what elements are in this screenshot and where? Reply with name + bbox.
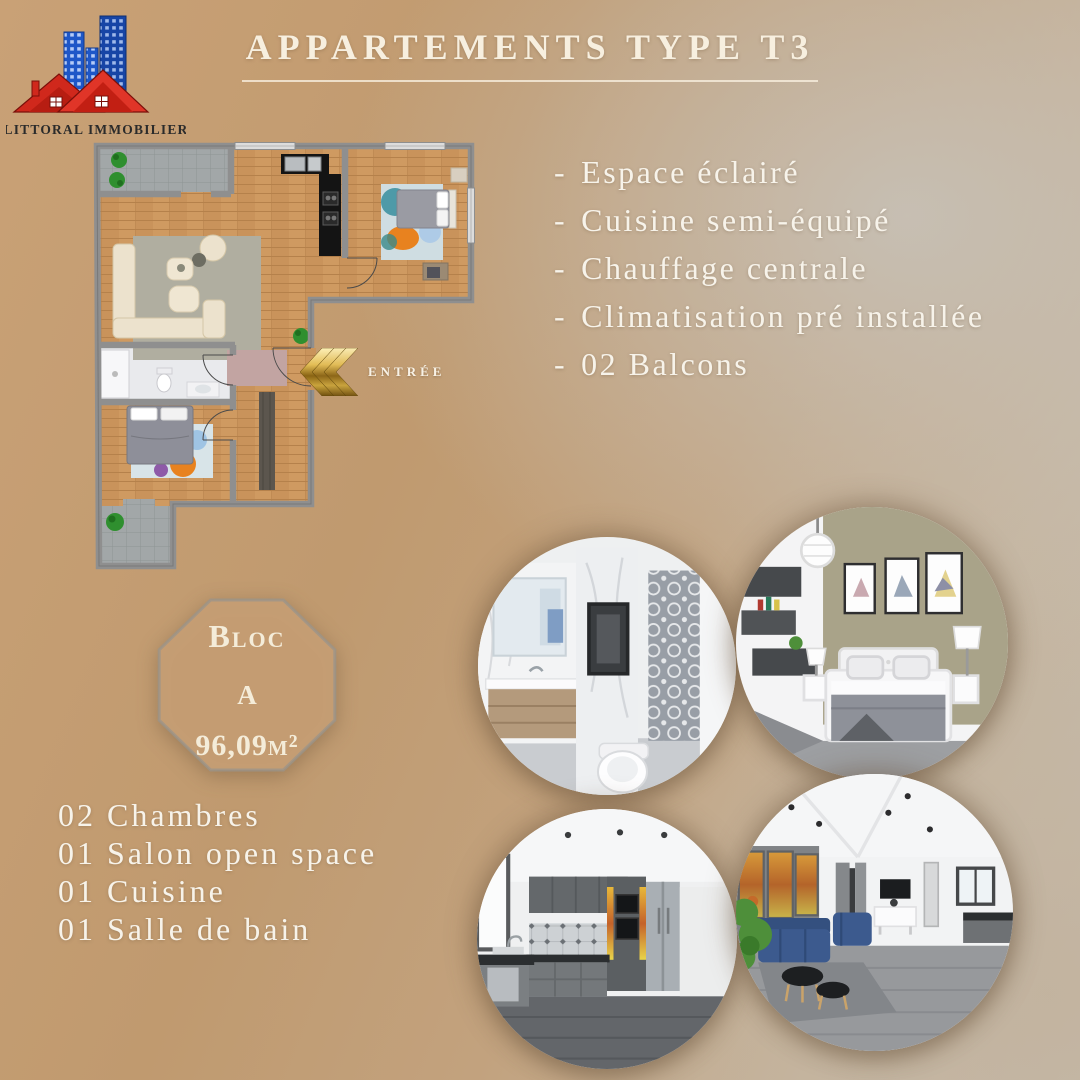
- photo-living-room: [736, 774, 1013, 1051]
- feature-item: -Climatisation pré installée: [554, 292, 985, 340]
- feature-item: -02 Balcons: [554, 340, 985, 388]
- composition-item: 01 Salle de bain: [58, 910, 377, 948]
- composition-item: 02 Chambres: [58, 796, 377, 834]
- photo-bedroom: [736, 507, 1008, 779]
- page-title: Appartements type T3: [240, 26, 820, 82]
- page-title-text: Appartements type T3: [242, 26, 819, 82]
- block-letter: A: [237, 680, 257, 710]
- block-badge: Bloc A 96,09m²: [147, 592, 347, 782]
- feature-item: -Espace éclairé: [554, 148, 985, 196]
- brand-logo: LITTORAL IMMOBILIER: [6, 4, 186, 144]
- entrance-marker: ENTRÉE: [300, 348, 445, 396]
- brand-name: LITTORAL IMMOBILIER: [6, 122, 186, 137]
- composition-item: 01 Cuisine: [58, 872, 377, 910]
- composition-list: 02 Chambres 01 Salon open space 01 Cuisi…: [58, 796, 377, 948]
- entrance-label: ENTRÉE: [368, 364, 445, 380]
- gold-chevrons-icon: [300, 348, 358, 396]
- block-area: 96,09m²: [195, 729, 298, 762]
- poster: LITTORAL IMMOBILIER Appartements type T3: [0, 0, 1080, 1080]
- features-list: -Espace éclairé -Cuisine semi-équipé -Ch…: [554, 148, 985, 388]
- photo-kitchen: [477, 809, 737, 1069]
- feature-item: -Chauffage centrale: [554, 244, 985, 292]
- photo-bathroom: [478, 537, 736, 795]
- buildings-roofs-icon: LITTORAL IMMOBILIER: [6, 4, 186, 144]
- block-label: Bloc: [208, 618, 285, 654]
- feature-item: -Cuisine semi-équipé: [554, 196, 985, 244]
- composition-item: 01 Salon open space: [58, 834, 377, 872]
